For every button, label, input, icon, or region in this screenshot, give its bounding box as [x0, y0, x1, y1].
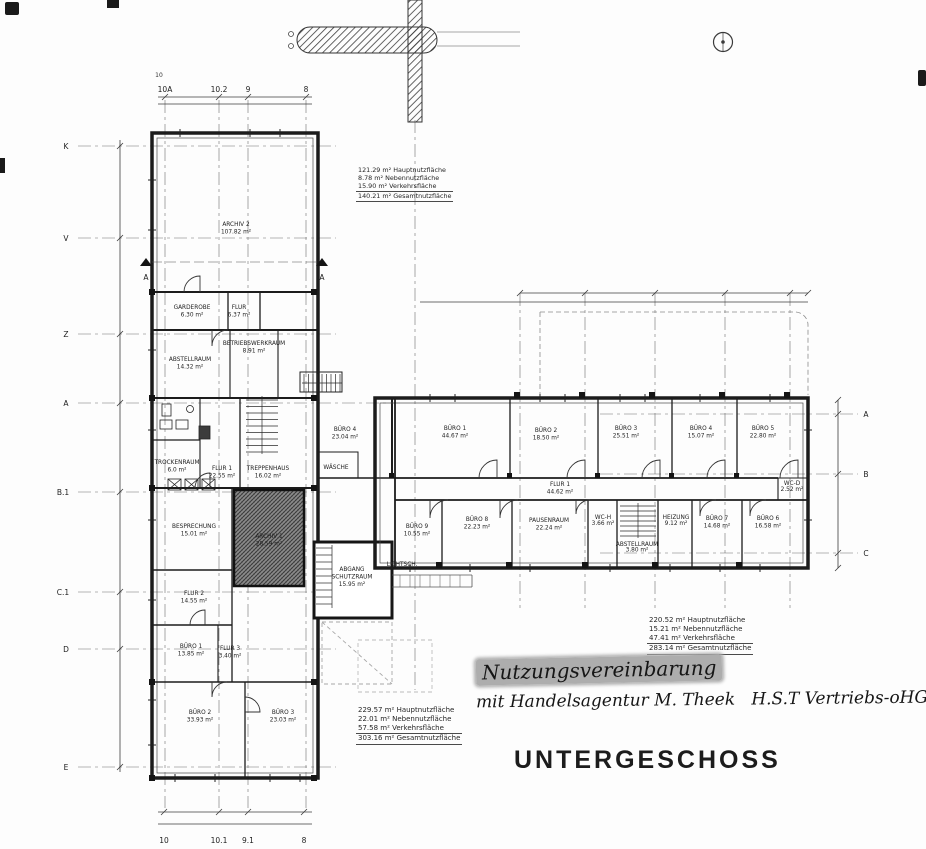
area-line: 220.52 m² Hauptnutzfläche — [647, 616, 753, 625]
axis-bottom-10: 10 — [159, 836, 169, 845]
axis-left-k: K — [64, 142, 70, 151]
room-betriebswerkraum: BETRIEBSWERKRAUM8.91 m² — [223, 341, 285, 355]
room-buero-4-rechts: BÜRO 415.07 m² — [688, 425, 714, 440]
area-summary-top-wing: 121.29 m² Hauptnutzfläche 8.78 m² Nebenn… — [356, 166, 453, 202]
area-line: 303.16 m² Gesamtnutzfläche — [356, 734, 462, 745]
area-summary-bottom-wing: 229.57 m² Hauptnutzfläche 22.01 m² Neben… — [356, 706, 462, 745]
axis-left-a: A — [63, 399, 69, 408]
room-buero-9: BÜRO 910.55 m² — [404, 523, 430, 538]
area-line: 8.78 m² Nebennutzfläche — [356, 174, 453, 182]
axis-labels: 10 10A 10.2 9 8 10 10.1 9.1 8 K V Z A B.… — [57, 72, 870, 845]
area-summary-right-wing: 220.52 m² Hauptnutzfläche 15.21 m² Neben… — [647, 616, 753, 655]
room-abstellraum-rechts: ABSTELLRAUM3.80 m² — [616, 542, 658, 554]
scan-artifact — [0, 158, 5, 173]
area-line: 121.29 m² Hauptnutzfläche — [356, 166, 453, 174]
room-besprechung: BESPRECHUNG15.01 m² — [172, 524, 216, 538]
overhang-dashed-outline — [540, 312, 808, 395]
section-cut-marks — [140, 258, 328, 266]
room-lichtschacht: LICHTSCH. — [387, 562, 418, 568]
room-pausenraum: PAUSENRAUM22.24 m² — [529, 518, 569, 532]
axis-bottom-8: 8 — [302, 836, 307, 845]
axis-left-e: E — [64, 763, 69, 772]
room-heizung: HEIZUNG9.12 m² — [663, 515, 690, 527]
room-buero-8: BÜRO 822.23 m² — [464, 516, 490, 531]
area-line: 15.90 m² Verkehrsfläche — [356, 182, 453, 192]
area-line: 140.21 m² Gesamtnutzfläche — [356, 192, 453, 202]
room-buero-4-junction: BÜRO 423.04 m² — [332, 426, 358, 441]
highlighted-text: Nutzungsvereinbarung — [476, 654, 723, 685]
axis-left-z: Z — [63, 330, 68, 339]
section-detail-hatched — [289, 0, 521, 122]
room-flur-2: FLUR 214.55 m² — [181, 591, 207, 605]
ghost-annex-outline — [322, 622, 432, 692]
room-archiv-2: ARCHIV 2107.82 m² — [221, 222, 251, 236]
axis-right-a: A — [863, 410, 869, 419]
wc-fixtures — [160, 404, 215, 490]
axis-left-d: D — [63, 645, 69, 654]
room-trockenraum: TROCKENRAUM6.0 m² — [154, 460, 200, 474]
floor-plan-drawing: ARCHIV 2107.82 m² GARDEROBE6.30 m² FLUR6… — [0, 0, 926, 849]
stair-treppenhaus — [246, 396, 278, 454]
room-flur: FLUR6.37 m² — [228, 305, 251, 319]
scan-artifact — [918, 70, 926, 86]
room-flur-1-links: FLUR 122.55 m² — [209, 466, 235, 480]
room-wc-herren: WC-H3.66 m² — [592, 515, 615, 527]
room-buero-3-rechts: BÜRO 325.51 m² — [613, 425, 639, 440]
room-archiv-1: ARCHIV 128.59 m² — [255, 534, 283, 548]
axis-left-c1: C.1 — [57, 588, 70, 597]
room-flur-1-rechts: FLUR 144.62 m² — [547, 482, 573, 496]
room-treppenhaus: TREPPENHAUS16.02 m² — [246, 466, 290, 480]
area-line: 15.21 m² Nebennutzfläche — [647, 625, 753, 634]
room-buero-3-links: BÜRO 323.03 m² — [270, 709, 296, 724]
room-buero-5: BÜRO 522.80 m² — [750, 425, 776, 440]
room-waesche: WÄSCHE — [323, 464, 348, 471]
scan-artifact — [107, 0, 119, 8]
compass-icon — [714, 33, 733, 52]
room-wc-damen: WC-D2.52 m² — [781, 481, 804, 493]
room-garderobe: GARDEROBE6.30 m² — [174, 305, 211, 319]
exterior-ramp — [392, 575, 472, 587]
area-line: 283.14 m² Gesamtnutzfläche — [647, 644, 753, 655]
dimension-lines — [117, 94, 841, 824]
area-line: 22.01 m² Nebennutzfläche — [356, 715, 462, 724]
room-flur-3: FLUR 33.40 m² — [219, 646, 242, 660]
axis-right-b: B — [863, 470, 868, 479]
section-mark-label-left: A — [143, 273, 149, 282]
axis-left-b1: B.1 — [57, 488, 70, 497]
room-buero-6: BÜRO 616.58 m² — [755, 515, 781, 530]
axis-left-v: V — [63, 234, 69, 243]
axis-top-9: 9 — [246, 85, 251, 94]
stair-right-wing — [620, 503, 656, 538]
area-line: 229.57 m² Hauptnutzfläche — [356, 706, 462, 715]
room-buero-2-rechts: BÜRO 218.50 m² — [533, 427, 559, 442]
axis-top-small: 10 — [155, 72, 163, 79]
axis-top-10a: 10A — [158, 85, 174, 94]
area-line: 57.58 m² Verkehrsfläche — [356, 724, 462, 735]
axis-bottom-101: 10.1 — [211, 836, 228, 845]
floor-plan-page: ARCHIV 2107.82 m² GARDEROBE6.30 m² FLUR6… — [0, 0, 926, 849]
axis-top-102: 10.2 — [211, 85, 228, 94]
room-buero-7: BÜRO 714.68 m² — [704, 515, 730, 530]
room-buero-1-links: BÜRO 113.85 m² — [178, 643, 204, 658]
axis-bottom-91: 9.1 — [242, 836, 254, 845]
room-buero-1-rechts: BÜRO 144.67 m² — [442, 425, 468, 440]
room-abstellraum-links: ABSTELLRAUM14.32 m² — [169, 357, 211, 371]
section-mark-label-right: A — [319, 273, 325, 282]
floor-title: UNTERGESCHOSS — [514, 746, 781, 775]
axis-right-c: C — [863, 549, 868, 558]
scan-artifact — [5, 2, 19, 15]
axis-top-8: 8 — [304, 85, 309, 94]
walls-right-wing — [375, 398, 808, 568]
room-buero-2-links: BÜRO 233.93 m² — [187, 709, 213, 724]
handwritten-note-line1: Nutzungsvereinbarung — [476, 655, 723, 684]
area-line: 47.41 m² Verkehrsfläche — [647, 634, 753, 645]
